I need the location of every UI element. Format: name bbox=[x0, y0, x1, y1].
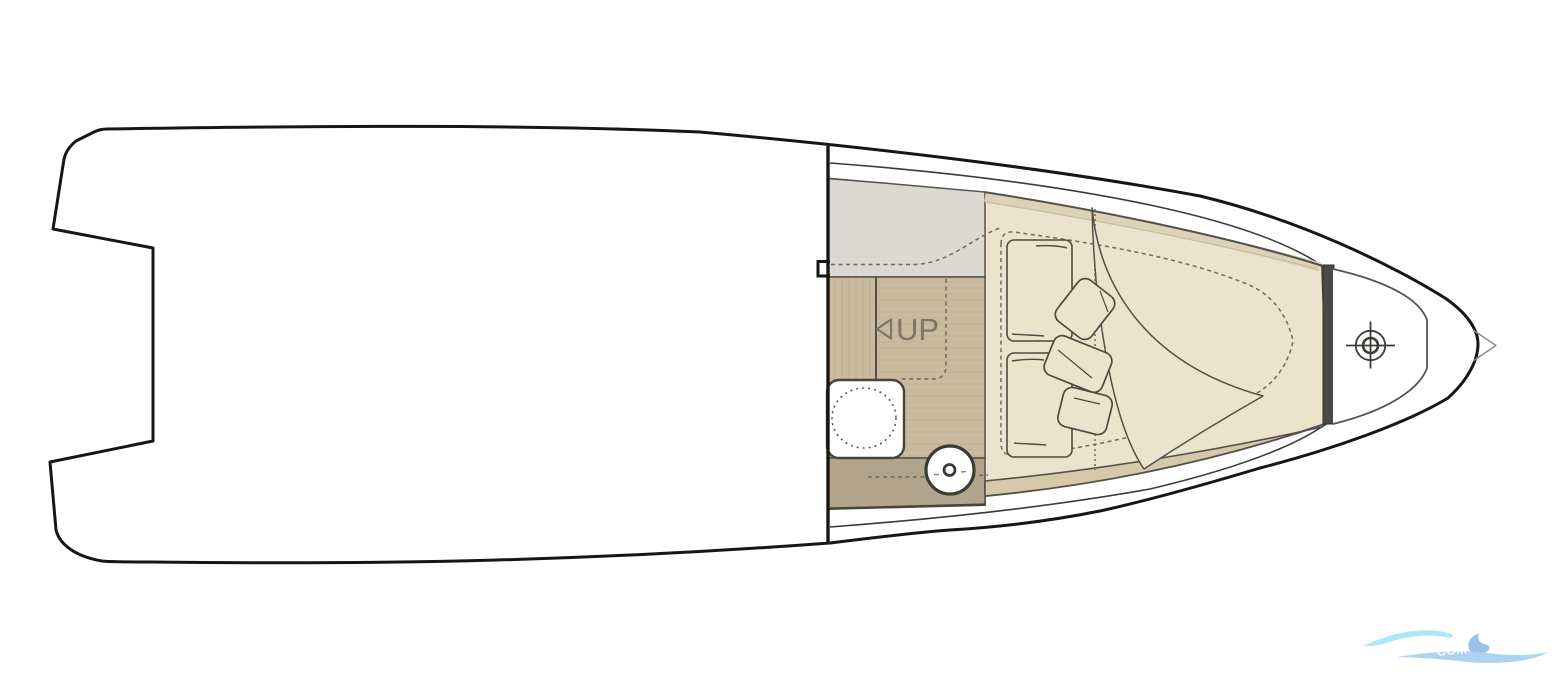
svg-text:UP: UP bbox=[896, 312, 939, 347]
svg-text:COM: COM bbox=[1436, 641, 1468, 659]
